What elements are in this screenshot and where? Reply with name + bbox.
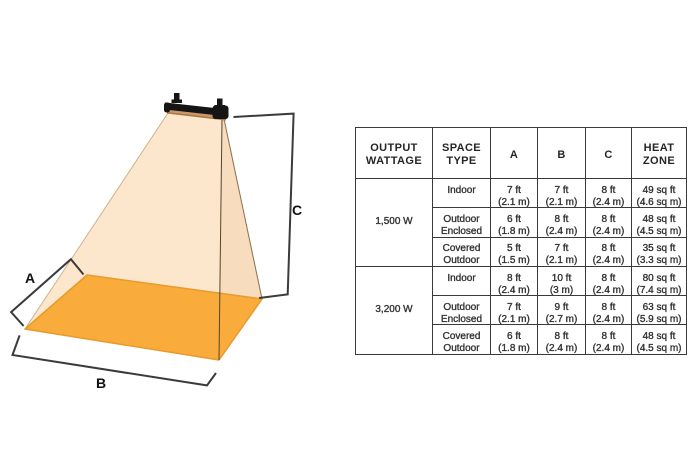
svg-text:A: A	[25, 270, 35, 286]
svg-text:C: C	[292, 202, 302, 218]
svg-text:B: B	[96, 375, 106, 391]
